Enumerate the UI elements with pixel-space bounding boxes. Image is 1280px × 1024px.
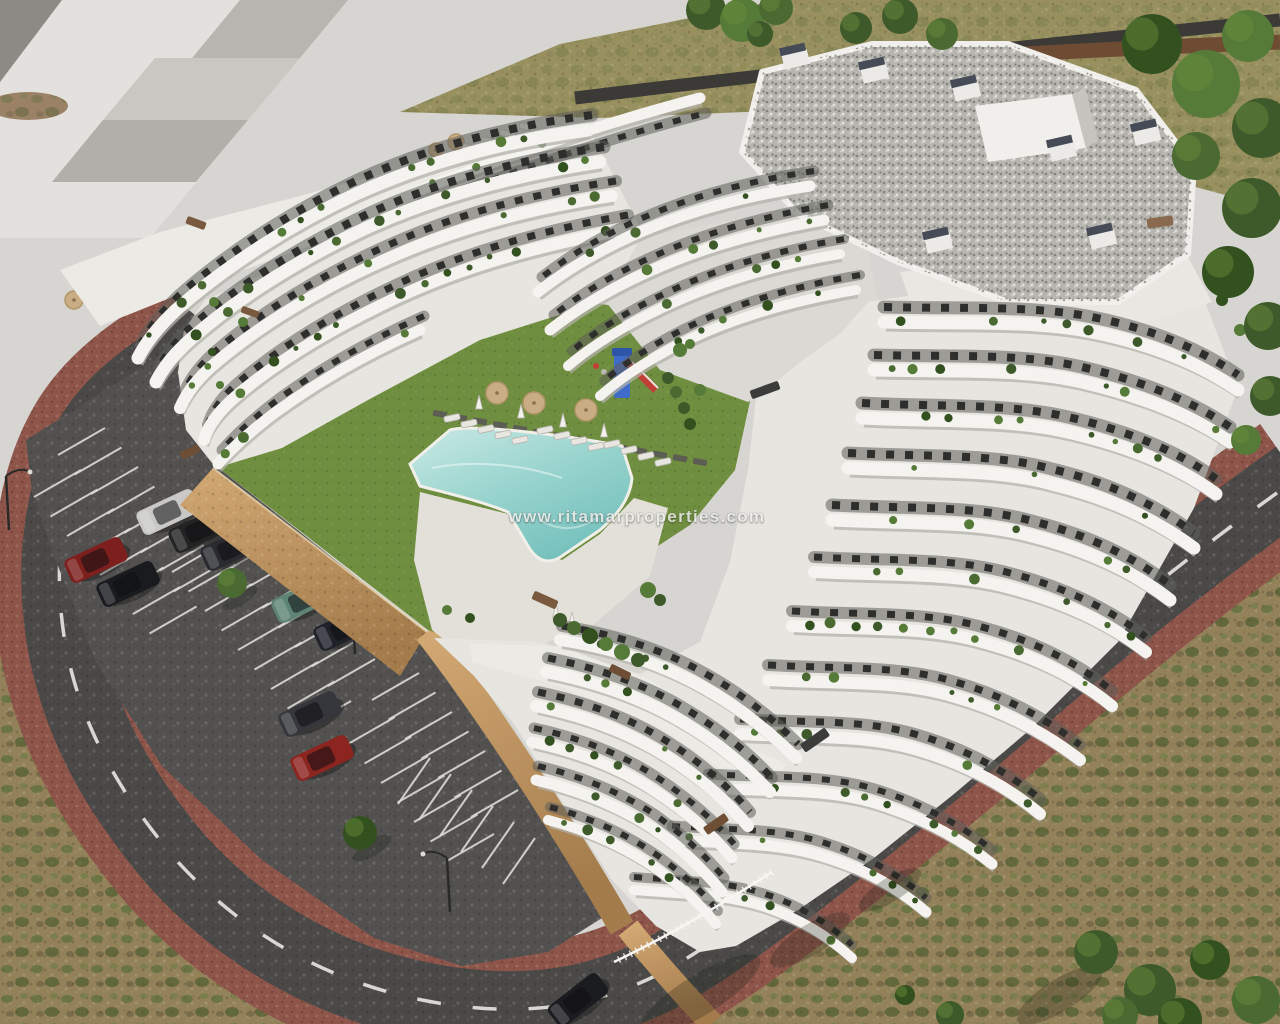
plant xyxy=(238,432,249,443)
plant xyxy=(807,219,813,225)
streetlight-lamp xyxy=(28,470,33,475)
plant xyxy=(684,418,696,430)
plant xyxy=(223,307,233,317)
plant xyxy=(606,836,615,845)
plant xyxy=(427,158,435,166)
plant xyxy=(631,653,645,667)
plant xyxy=(1083,681,1088,686)
plant xyxy=(907,364,917,374)
tree-highlight xyxy=(1175,135,1201,161)
plant xyxy=(899,624,908,633)
plant xyxy=(994,415,1003,424)
plant xyxy=(146,332,151,337)
plant xyxy=(662,299,672,309)
plant xyxy=(670,386,682,398)
plant xyxy=(1012,525,1020,533)
plant xyxy=(805,621,815,631)
plant xyxy=(1104,622,1110,628)
plant xyxy=(825,617,836,628)
plant xyxy=(873,622,882,631)
plant xyxy=(1083,325,1093,335)
plant xyxy=(1017,416,1024,423)
plant xyxy=(1123,566,1131,574)
tree-highlight xyxy=(884,0,904,20)
plant xyxy=(766,901,775,910)
tree-highlight xyxy=(896,986,907,997)
tree-highlight xyxy=(1252,378,1274,400)
plant xyxy=(873,568,881,576)
plant xyxy=(951,830,958,837)
plant xyxy=(614,761,623,770)
plant xyxy=(935,364,945,374)
tree-highlight xyxy=(1225,13,1254,42)
plant xyxy=(663,664,669,670)
tree-highlight xyxy=(1077,933,1101,957)
plant xyxy=(332,237,341,246)
plant xyxy=(851,622,860,631)
plant xyxy=(601,679,609,687)
tree-highlight xyxy=(1176,54,1213,91)
plant xyxy=(466,264,472,270)
plant xyxy=(485,178,490,183)
plant xyxy=(496,136,507,147)
plant xyxy=(364,259,372,267)
tree-highlight xyxy=(1104,999,1124,1019)
plant xyxy=(401,330,409,338)
plant xyxy=(1154,454,1162,462)
plant xyxy=(1133,337,1143,347)
plant xyxy=(444,269,452,277)
plant xyxy=(994,704,1000,710)
plant xyxy=(698,327,704,333)
plant xyxy=(1113,439,1119,445)
plant xyxy=(408,164,415,171)
plant xyxy=(547,702,555,710)
plant xyxy=(694,384,706,396)
plant xyxy=(599,637,613,651)
plant xyxy=(1104,556,1112,564)
plant xyxy=(297,217,303,223)
plant xyxy=(553,613,567,627)
plant xyxy=(1127,632,1136,641)
plant xyxy=(921,411,930,420)
tree-highlight xyxy=(219,570,236,587)
plant xyxy=(1133,443,1143,453)
plant xyxy=(238,317,248,327)
plant xyxy=(655,827,660,832)
plant xyxy=(1014,645,1024,655)
tree-highlight xyxy=(1233,427,1250,444)
plant xyxy=(235,388,245,398)
plant xyxy=(896,568,904,576)
tree-highlight xyxy=(749,23,763,37)
plant xyxy=(567,621,581,635)
plant xyxy=(642,264,653,275)
plant xyxy=(962,760,972,770)
plant xyxy=(1024,799,1032,807)
tree-highlight xyxy=(1126,18,1159,51)
plant xyxy=(520,135,527,142)
plant xyxy=(709,240,718,249)
plant xyxy=(929,820,938,829)
plant xyxy=(648,859,655,866)
plant xyxy=(308,250,313,255)
plant xyxy=(989,317,998,326)
plant xyxy=(204,363,211,370)
parasol-pole xyxy=(532,401,536,405)
plant xyxy=(757,227,762,232)
plant xyxy=(685,339,695,349)
plant xyxy=(441,190,450,199)
plant xyxy=(829,672,839,682)
plant xyxy=(974,846,982,854)
plant xyxy=(333,322,339,328)
plant xyxy=(623,687,632,696)
tree-highlight xyxy=(1226,182,1259,215)
plant xyxy=(584,674,591,681)
plant xyxy=(198,281,207,290)
plant xyxy=(889,516,897,524)
plant xyxy=(558,162,568,172)
plant xyxy=(634,813,644,823)
plant xyxy=(590,751,598,759)
plant xyxy=(760,837,766,843)
plant xyxy=(696,775,701,780)
aerial-render: www.ritamarproperties.com xyxy=(0,0,1280,1024)
plant xyxy=(640,582,656,598)
plant xyxy=(293,346,298,351)
plant xyxy=(1142,513,1148,519)
parasol-pole xyxy=(495,391,499,395)
plant xyxy=(1062,319,1071,328)
plant xyxy=(314,333,322,341)
plant xyxy=(590,191,600,201)
plant xyxy=(926,627,935,636)
plant xyxy=(243,283,254,294)
tree-highlight xyxy=(723,1,747,25)
plant xyxy=(815,290,821,296)
plant xyxy=(795,256,801,262)
plant xyxy=(1089,432,1095,438)
plant xyxy=(630,227,640,237)
plant xyxy=(802,672,811,681)
watermark: www.ritamarproperties.com xyxy=(509,507,766,527)
plant xyxy=(912,898,918,904)
plant xyxy=(421,280,428,287)
plant xyxy=(673,343,687,357)
parasol-pole xyxy=(72,298,76,302)
plant xyxy=(565,744,574,753)
plant xyxy=(614,644,630,660)
plant xyxy=(741,895,748,902)
tree-highlight xyxy=(1192,942,1214,964)
tree-highlight xyxy=(928,20,946,38)
plant xyxy=(269,356,280,367)
plant xyxy=(189,382,195,388)
plant xyxy=(1032,472,1038,478)
plant xyxy=(487,254,493,260)
plant xyxy=(673,799,681,807)
plant xyxy=(752,264,761,273)
plant xyxy=(688,244,698,254)
plant xyxy=(501,212,507,218)
tree-highlight xyxy=(345,818,364,837)
tree-highlight xyxy=(1235,979,1261,1005)
tree-highlight xyxy=(1205,249,1234,278)
plant xyxy=(950,627,957,634)
streetlight-lamp xyxy=(421,852,426,857)
plant xyxy=(896,316,906,326)
plant xyxy=(512,247,521,256)
plant xyxy=(861,793,868,800)
plant xyxy=(177,298,187,308)
plant xyxy=(545,736,555,746)
plant xyxy=(561,820,567,826)
tree-highlight xyxy=(1127,967,1156,996)
plant xyxy=(969,574,980,585)
plant xyxy=(1041,318,1046,323)
plant xyxy=(568,197,576,205)
plant xyxy=(582,628,598,644)
tree-highlight xyxy=(1247,305,1273,331)
plant xyxy=(1063,598,1070,605)
tree-highlight xyxy=(1161,1001,1185,1024)
plant xyxy=(1104,383,1109,388)
plant xyxy=(771,260,780,269)
plant xyxy=(654,594,666,606)
plant xyxy=(869,869,876,876)
plant xyxy=(889,365,896,372)
plant xyxy=(299,295,305,301)
plant xyxy=(944,414,952,422)
parasol-pole xyxy=(584,408,588,412)
plant xyxy=(395,288,406,299)
plant xyxy=(1120,387,1130,397)
plant xyxy=(191,329,202,340)
plant xyxy=(949,690,954,695)
tree-highlight xyxy=(1236,102,1269,135)
plant xyxy=(762,300,773,311)
plant xyxy=(1181,354,1186,359)
plant xyxy=(278,228,287,237)
plant xyxy=(662,372,674,384)
plant xyxy=(665,873,674,882)
plant xyxy=(317,204,324,211)
plant xyxy=(911,465,917,471)
plant xyxy=(216,381,224,389)
plant xyxy=(743,193,749,199)
plant xyxy=(719,316,727,324)
plant xyxy=(883,801,891,809)
plant xyxy=(374,215,385,226)
plant xyxy=(662,746,667,751)
plant xyxy=(964,519,974,529)
plant xyxy=(221,449,230,458)
plant xyxy=(968,697,974,703)
plant xyxy=(208,348,216,356)
plant xyxy=(971,635,979,643)
plant xyxy=(395,210,401,216)
plant xyxy=(841,788,850,797)
plant xyxy=(442,605,452,615)
plant xyxy=(582,825,593,836)
plant xyxy=(591,792,599,800)
plant xyxy=(209,297,219,307)
plant xyxy=(465,613,475,623)
tree-highlight xyxy=(842,14,860,32)
plant xyxy=(1006,364,1016,374)
plant xyxy=(678,402,690,414)
plant xyxy=(581,156,589,164)
tree-highlight xyxy=(938,1003,953,1018)
plant xyxy=(1212,426,1219,433)
plant xyxy=(586,248,595,257)
